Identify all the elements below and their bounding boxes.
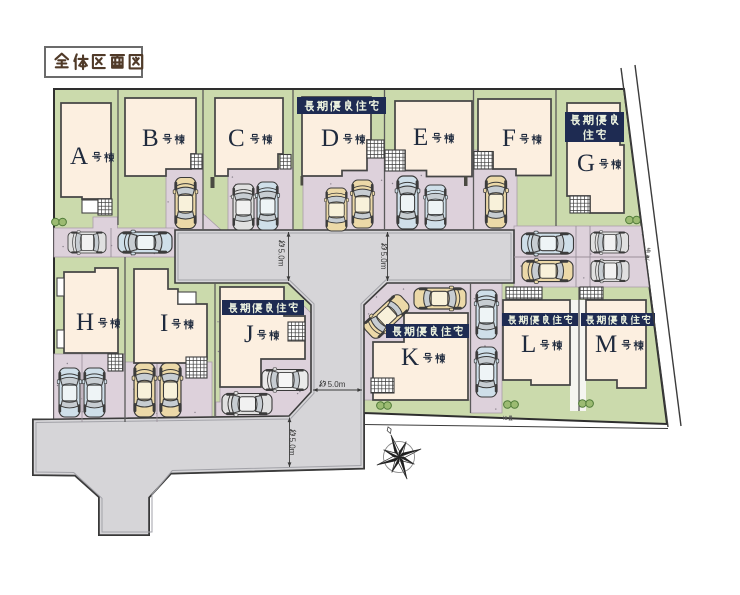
svg-text:I: I (160, 310, 168, 337)
svg-text:B: B (142, 125, 159, 152)
svg-text:L: L (521, 331, 536, 358)
svg-text:E: E (413, 124, 428, 151)
svg-text:G: G (577, 150, 595, 177)
svg-text:5.0m: 5.0m (288, 438, 297, 456)
svg-text:H: H (76, 309, 94, 336)
svg-text:D: D (321, 125, 339, 152)
svg-text:A: A (70, 143, 88, 170)
svg-text:F: F (502, 125, 516, 152)
svg-text:C: C (228, 125, 245, 152)
svg-text:K: K (401, 344, 419, 371)
svg-text:M: M (595, 331, 617, 358)
svg-text:J: J (244, 321, 254, 348)
svg-text:5.0m: 5.0m (328, 380, 346, 389)
svg-text:5.0m: 5.0m (379, 252, 388, 270)
svg-text:5.0m: 5.0m (277, 249, 286, 267)
